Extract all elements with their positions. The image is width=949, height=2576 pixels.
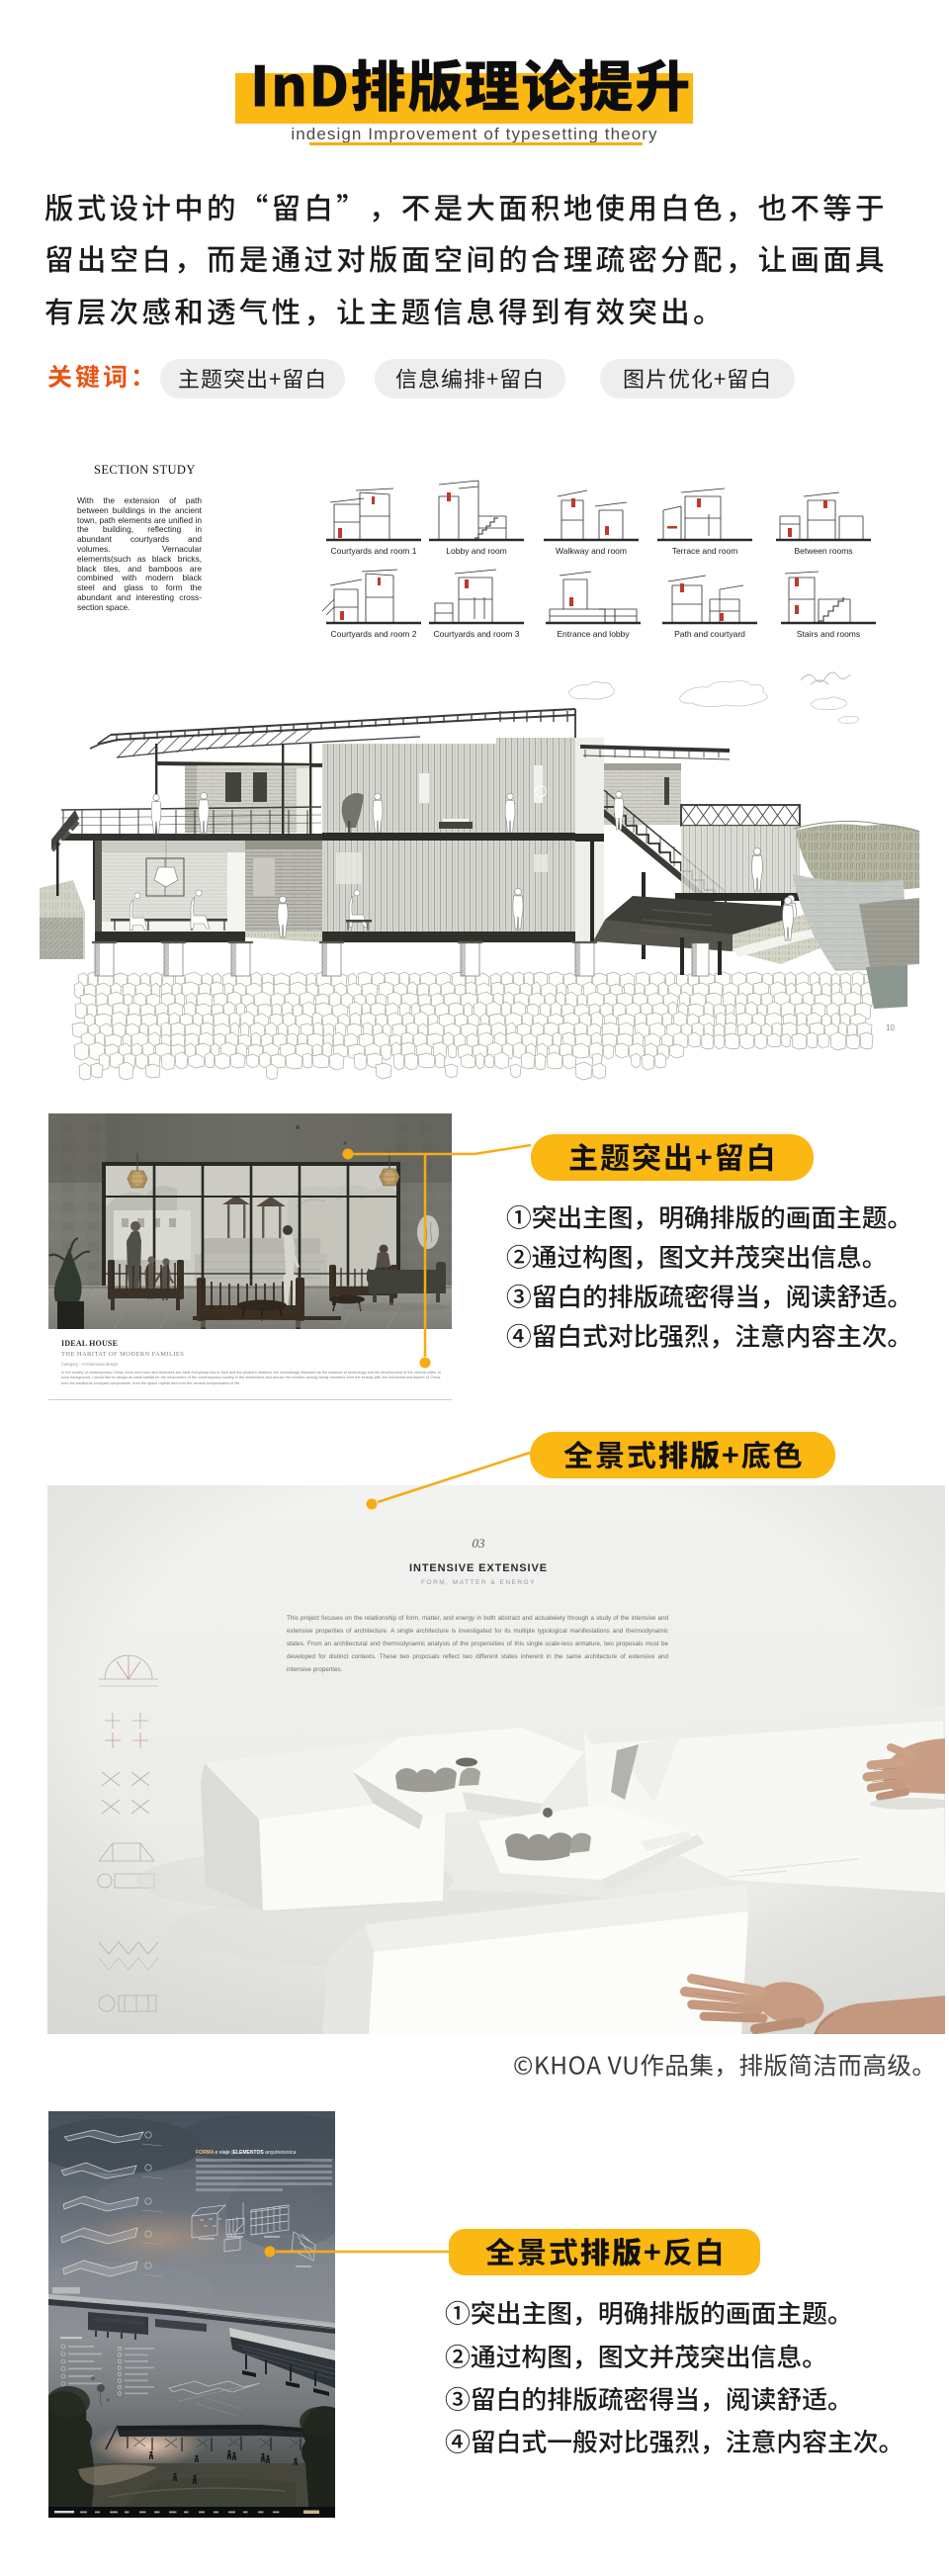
svg-text:10: 10 (886, 1023, 895, 1032)
svg-text:FORMA e viaje |ELEMENTOS arqui: FORMA e viaje |ELEMENTOS arquitetonica (196, 2150, 297, 2156)
